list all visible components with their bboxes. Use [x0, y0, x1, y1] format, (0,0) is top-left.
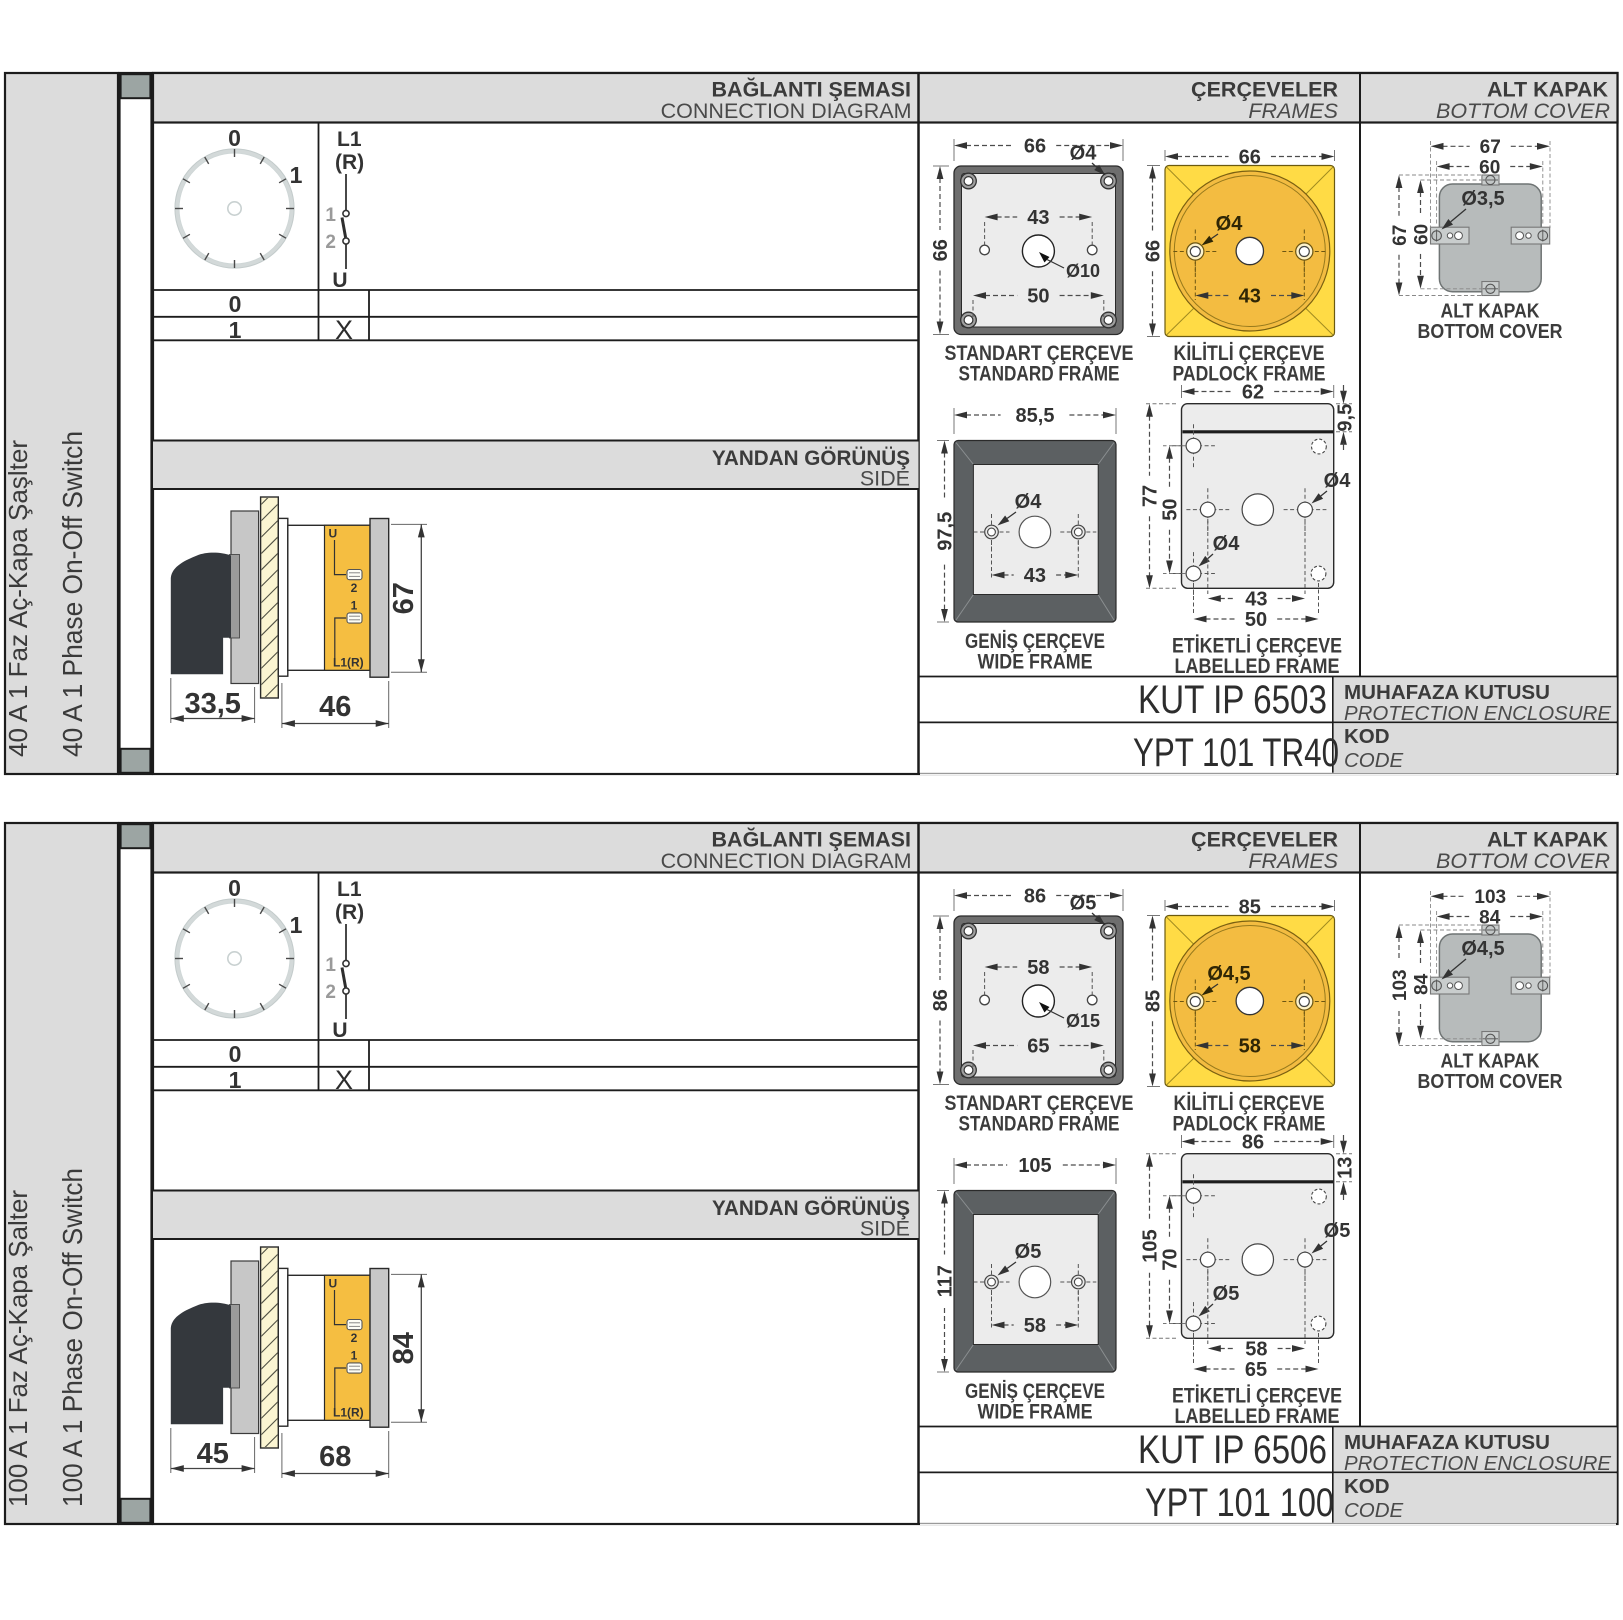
svg-text:BAĞLANTI ŞEMASI: BAĞLANTI ŞEMASI	[712, 77, 911, 102]
svg-text:CONNECTION DIAGRAM: CONNECTION DIAGRAM	[661, 99, 912, 123]
svg-text:68: 68	[319, 1441, 351, 1473]
svg-text:U: U	[329, 1277, 338, 1291]
svg-text:BOTTOM COVER: BOTTOM COVER	[1436, 849, 1610, 873]
svg-text:ALT KAPAK: ALT KAPAK	[1487, 828, 1608, 852]
svg-text:Ø5: Ø5	[1213, 1283, 1240, 1305]
svg-text:77: 77	[1140, 485, 1162, 507]
svg-text:PROTECTION ENCLOSURE: PROTECTION ENCLOSURE	[1344, 702, 1611, 725]
svg-text:ALT KAPAK: ALT KAPAK	[1487, 78, 1608, 102]
svg-text:46: 46	[319, 691, 351, 723]
svg-text:85: 85	[1239, 897, 1261, 919]
svg-text:2: 2	[351, 581, 358, 595]
svg-text:Ø15: Ø15	[1066, 1011, 1100, 1031]
svg-text:67: 67	[1480, 137, 1501, 158]
svg-text:ÇERÇEVELER: ÇERÇEVELER	[1191, 78, 1338, 102]
svg-text:60: 60	[1411, 224, 1432, 245]
svg-text:65: 65	[1245, 1359, 1267, 1381]
svg-text:X: X	[335, 1065, 353, 1095]
svg-text:86: 86	[1242, 1132, 1264, 1154]
svg-text:SIDE: SIDE	[860, 467, 910, 491]
svg-text:58: 58	[1027, 957, 1049, 979]
svg-text:U: U	[329, 527, 338, 541]
svg-text:CONNECTION DIAGRAM: CONNECTION DIAGRAM	[661, 849, 912, 873]
svg-text:33,5: 33,5	[184, 688, 240, 720]
svg-text:Ø4,5: Ø4,5	[1207, 963, 1250, 985]
svg-text:1: 1	[351, 599, 358, 613]
svg-text:FRAMES: FRAMES	[1248, 849, 1338, 873]
svg-text:1: 1	[229, 1067, 242, 1093]
svg-text:Ø4: Ø4	[1324, 470, 1352, 492]
svg-text:LABELLED FRAME: LABELLED FRAME	[1175, 1405, 1340, 1428]
svg-text:WIDE FRAME: WIDE FRAME	[978, 651, 1093, 674]
svg-text:65: 65	[1027, 1036, 1049, 1058]
svg-text:L1: L1	[337, 128, 362, 151]
svg-text:66: 66	[1024, 136, 1046, 158]
svg-text:U: U	[332, 269, 347, 292]
svg-text:58: 58	[1239, 1036, 1261, 1058]
svg-text:50: 50	[1027, 286, 1049, 308]
svg-text:43: 43	[1239, 286, 1261, 308]
svg-text:43: 43	[1027, 207, 1049, 229]
svg-text:1: 1	[229, 317, 242, 343]
svg-text:97,5: 97,5	[935, 512, 957, 551]
svg-text:43: 43	[1024, 565, 1046, 587]
svg-text:MUHAFAZA KUTUSU: MUHAFAZA KUTUSU	[1344, 681, 1550, 704]
svg-text:1: 1	[290, 912, 303, 938]
svg-text:BOTTOM COVER: BOTTOM COVER	[1436, 99, 1610, 123]
svg-text:Ø4: Ø4	[1070, 143, 1098, 165]
svg-text:Ø5: Ø5	[1015, 1241, 1042, 1263]
svg-text:85: 85	[1143, 990, 1165, 1012]
svg-text:WIDE FRAME: WIDE FRAME	[978, 1401, 1093, 1424]
svg-text:ALT KAPAK: ALT KAPAK	[1441, 1051, 1540, 1073]
svg-text:66: 66	[1143, 240, 1165, 262]
svg-text:103: 103	[1390, 969, 1411, 1001]
svg-text:X: X	[335, 315, 353, 345]
svg-text:100 A 1 Faz Aç-Kapa Şalter: 100 A 1 Faz Aç-Kapa Şalter	[3, 1190, 33, 1507]
svg-text:STANDARD FRAME: STANDARD FRAME	[959, 1113, 1120, 1136]
svg-text:KUT IP 6506: KUT IP 6506	[1138, 1428, 1327, 1472]
svg-text:85,5: 85,5	[1016, 405, 1055, 427]
svg-text:84: 84	[1411, 973, 1432, 995]
svg-text:ALT KAPAK: ALT KAPAK	[1441, 301, 1540, 323]
svg-text:Ø4: Ø4	[1015, 491, 1043, 513]
svg-text:L1(R): L1(R)	[333, 1406, 364, 1420]
svg-text:13: 13	[1335, 1157, 1357, 1179]
svg-text:66: 66	[930, 239, 952, 261]
svg-text:0: 0	[228, 125, 241, 151]
svg-text:1: 1	[290, 162, 303, 188]
svg-text:Ø4: Ø4	[1213, 533, 1241, 555]
svg-text:117: 117	[935, 1265, 957, 1297]
svg-text:1: 1	[351, 1349, 358, 1363]
svg-text:MUHAFAZA KUTUSU: MUHAFAZA KUTUSU	[1344, 1431, 1550, 1454]
svg-text:Ø3,5: Ø3,5	[1461, 188, 1504, 210]
svg-text:40 A 1 Faz Aç-Kapa Şaşlter: 40 A 1 Faz Aç-Kapa Şaşlter	[3, 440, 33, 757]
svg-text:CODE: CODE	[1344, 1499, 1404, 1522]
svg-text:70: 70	[1160, 1248, 1182, 1270]
svg-text:KOD: KOD	[1344, 725, 1390, 748]
svg-text:67: 67	[1390, 225, 1411, 246]
svg-text:9,5: 9,5	[1335, 404, 1357, 432]
svg-text:SIDE: SIDE	[860, 1217, 910, 1241]
svg-text:BAĞLANTI ŞEMASI: BAĞLANTI ŞEMASI	[712, 827, 911, 852]
svg-text:Ø10: Ø10	[1066, 261, 1100, 281]
svg-text:105: 105	[1018, 1155, 1051, 1177]
svg-text:BOTTOM COVER: BOTTOM COVER	[1418, 1071, 1563, 1093]
svg-text:60: 60	[1479, 157, 1500, 178]
svg-text:Ø5: Ø5	[1324, 1220, 1351, 1242]
svg-text:62: 62	[1242, 382, 1264, 404]
svg-text:2: 2	[351, 1331, 358, 1345]
svg-text:43: 43	[1245, 589, 1267, 611]
svg-text:L1: L1	[337, 878, 362, 901]
svg-text:(R): (R)	[335, 901, 364, 924]
svg-text:100 A 1 Phase On-Off Switch: 100 A 1 Phase On-Off Switch	[57, 1168, 88, 1507]
svg-text:KOD: KOD	[1344, 1475, 1390, 1498]
svg-text:67: 67	[388, 582, 420, 614]
svg-text:Ø4,5: Ø4,5	[1461, 938, 1504, 960]
svg-text:BOTTOM COVER: BOTTOM COVER	[1418, 321, 1563, 343]
svg-text:2: 2	[325, 232, 336, 253]
svg-text:45: 45	[197, 1438, 229, 1470]
svg-text:0: 0	[229, 291, 242, 317]
svg-text:2: 2	[325, 982, 336, 1003]
svg-text:84: 84	[1479, 907, 1501, 928]
svg-text:YPT 101 100: YPT 101 100	[1145, 1481, 1334, 1525]
svg-text:(R): (R)	[335, 151, 364, 174]
svg-text:84: 84	[388, 1332, 420, 1364]
svg-text:50: 50	[1245, 609, 1267, 631]
svg-text:FRAMES: FRAMES	[1248, 99, 1338, 123]
svg-text:103: 103	[1474, 887, 1506, 908]
svg-text:86: 86	[930, 989, 952, 1011]
svg-text:1: 1	[325, 955, 336, 976]
svg-text:1: 1	[325, 205, 336, 226]
svg-text:KUT IP 6503: KUT IP 6503	[1138, 678, 1327, 722]
svg-text:PROTECTION ENCLOSURE: PROTECTION ENCLOSURE	[1344, 1452, 1611, 1475]
svg-text:STANDARD FRAME: STANDARD FRAME	[959, 363, 1120, 386]
svg-text:105: 105	[1140, 1229, 1162, 1262]
svg-text:LABELLED FRAME: LABELLED FRAME	[1175, 655, 1340, 678]
svg-text:50: 50	[1160, 498, 1182, 520]
svg-text:86: 86	[1024, 886, 1046, 908]
svg-text:0: 0	[229, 1041, 242, 1067]
svg-text:58: 58	[1024, 1315, 1046, 1337]
svg-text:ÇERÇEVELER: ÇERÇEVELER	[1191, 828, 1338, 852]
svg-text:40 A 1 Phase On-Off Switch: 40 A 1 Phase On-Off Switch	[57, 431, 88, 757]
svg-text:Ø4: Ø4	[1216, 213, 1244, 235]
svg-text:U: U	[332, 1019, 347, 1042]
svg-text:Ø5: Ø5	[1070, 893, 1097, 915]
svg-text:58: 58	[1245, 1339, 1267, 1361]
svg-text:L1(R): L1(R)	[333, 656, 364, 670]
svg-text:66: 66	[1239, 147, 1261, 169]
svg-text:0: 0	[228, 875, 241, 901]
